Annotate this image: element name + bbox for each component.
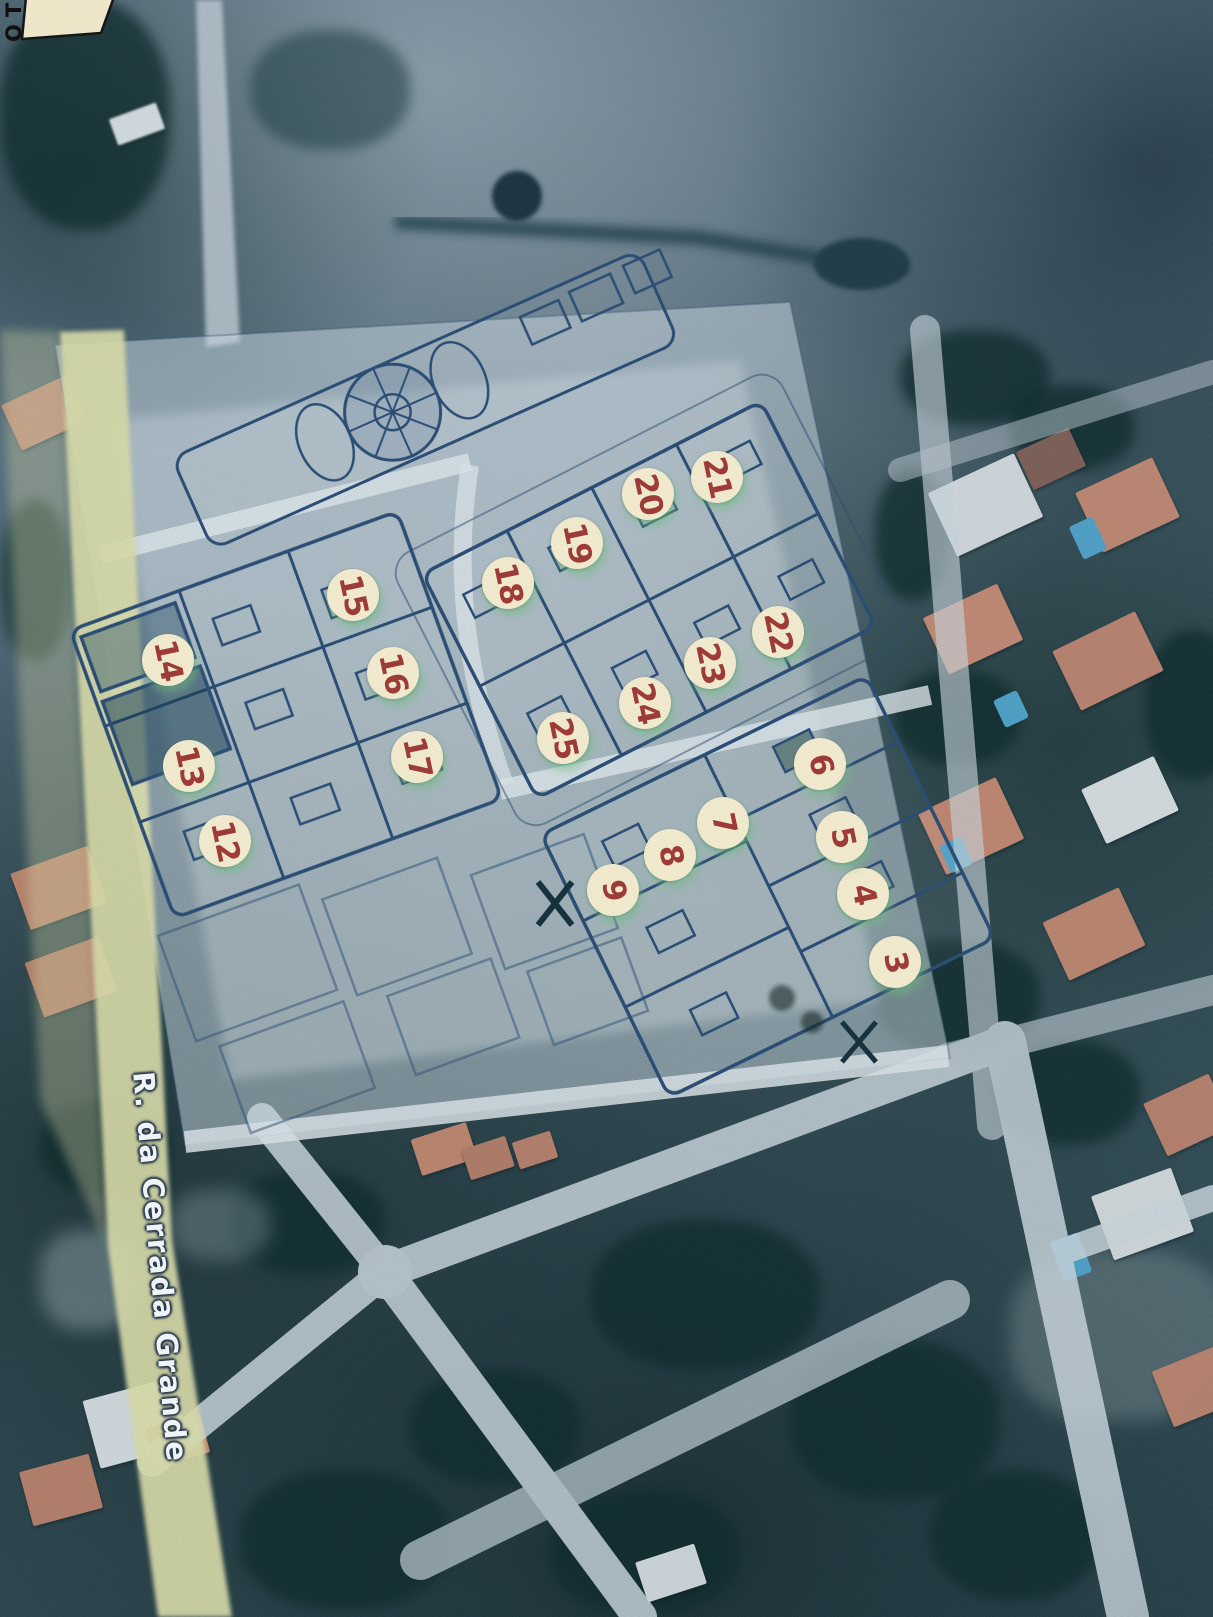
lot-marker-12: 12	[199, 815, 251, 867]
lot-marker-14: 14	[142, 634, 194, 686]
lot-marker-22: 22	[752, 606, 804, 658]
lot-marker-number: 3	[878, 949, 913, 976]
lot-marker-17: 17	[391, 731, 443, 783]
lot-marker-number: 13	[170, 743, 209, 790]
lot-marker-number: 20	[629, 471, 668, 518]
lot-marker-number: 24	[626, 680, 665, 727]
lot-marker-3: 3	[869, 936, 921, 988]
lot-marker-number: 18	[489, 560, 528, 607]
lot-marker-24: 24	[619, 677, 671, 729]
corner-label-text: TO	[4, 1, 24, 42]
lot-marker-number: 17	[398, 734, 437, 781]
lot-marker-number: 22	[759, 609, 798, 656]
lot-marker-number: 14	[149, 637, 188, 684]
lot-marker-number: 15	[334, 572, 373, 619]
lot-marker-9: 9	[587, 864, 639, 916]
lot-marker-20: 20	[622, 468, 674, 520]
corner-label-letter: T	[5, 0, 23, 20]
lot-marker-number: 16	[374, 650, 413, 697]
lot-marker-number: 7	[706, 810, 741, 837]
lot-marker-7: 7	[697, 797, 749, 849]
lot-marker-number: 23	[691, 640, 730, 687]
lot-marker-number: 19	[558, 520, 597, 567]
lot-marker-number: 8	[653, 842, 688, 869]
lot-markers-layer: 34567891213141516171819202122232425	[0, 0, 1213, 1617]
lot-marker-16: 16	[367, 647, 419, 699]
lot-marker-5: 5	[816, 811, 868, 863]
lot-marker-19: 19	[551, 517, 603, 569]
lot-marker-number: 9	[596, 877, 631, 904]
lot-marker-18: 18	[482, 557, 534, 609]
lot-marker-number: 21	[698, 454, 737, 501]
aerial-map-photo: R. da Cerrada Grande 3456789121314151617…	[0, 0, 1213, 1617]
lot-marker-number: 25	[544, 715, 583, 762]
lot-marker-number: 4	[846, 881, 881, 908]
lot-marker-13: 13	[163, 740, 215, 792]
lot-marker-15: 15	[327, 569, 379, 621]
lot-marker-number: 6	[803, 751, 838, 778]
corner-label-letter: O	[5, 23, 23, 43]
lot-marker-6: 6	[794, 738, 846, 790]
lot-marker-21: 21	[691, 451, 743, 503]
lot-marker-number: 12	[206, 818, 245, 865]
lot-marker-25: 25	[537, 712, 589, 764]
lot-marker-4: 4	[837, 868, 889, 920]
lot-marker-number: 5	[825, 824, 860, 851]
lot-marker-23: 23	[684, 637, 736, 689]
lot-marker-8: 8	[644, 829, 696, 881]
